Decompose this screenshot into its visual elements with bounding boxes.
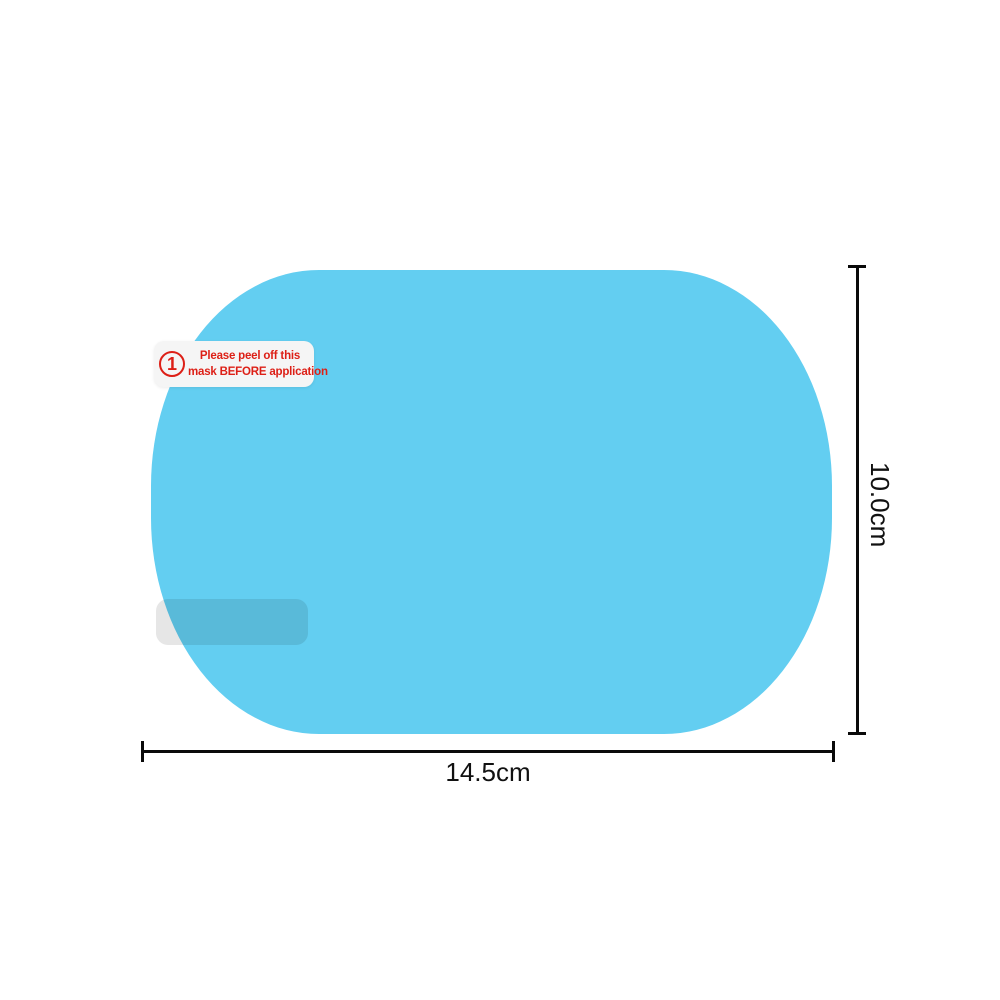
warning-text: Please peel off this mask BEFORE applica… bbox=[188, 348, 312, 380]
warning-text-line2: mask BEFORE application bbox=[188, 364, 312, 380]
height-dimension-label: 10.0cm bbox=[864, 458, 895, 552]
warning-text-line1: Please peel off this bbox=[188, 348, 312, 364]
warning-label: 1 Please peel off this mask BEFORE appli… bbox=[154, 341, 314, 387]
height-dimension-line bbox=[856, 266, 859, 735]
step-number-badge: 1 bbox=[159, 351, 185, 377]
height-dimension-cap-top bbox=[848, 265, 866, 268]
width-dimension-line bbox=[142, 750, 834, 753]
step-number: 1 bbox=[167, 355, 177, 373]
height-dimension-cap-bottom bbox=[848, 732, 866, 735]
width-dimension-label: 14.5cm bbox=[418, 757, 558, 788]
width-dimension-cap-left bbox=[141, 741, 144, 762]
film-shape bbox=[151, 270, 832, 734]
peel-mask-tab bbox=[156, 599, 308, 645]
width-dimension-cap-right bbox=[832, 741, 835, 762]
product-diagram: 1 Please peel off this mask BEFORE appli… bbox=[0, 0, 1000, 1000]
